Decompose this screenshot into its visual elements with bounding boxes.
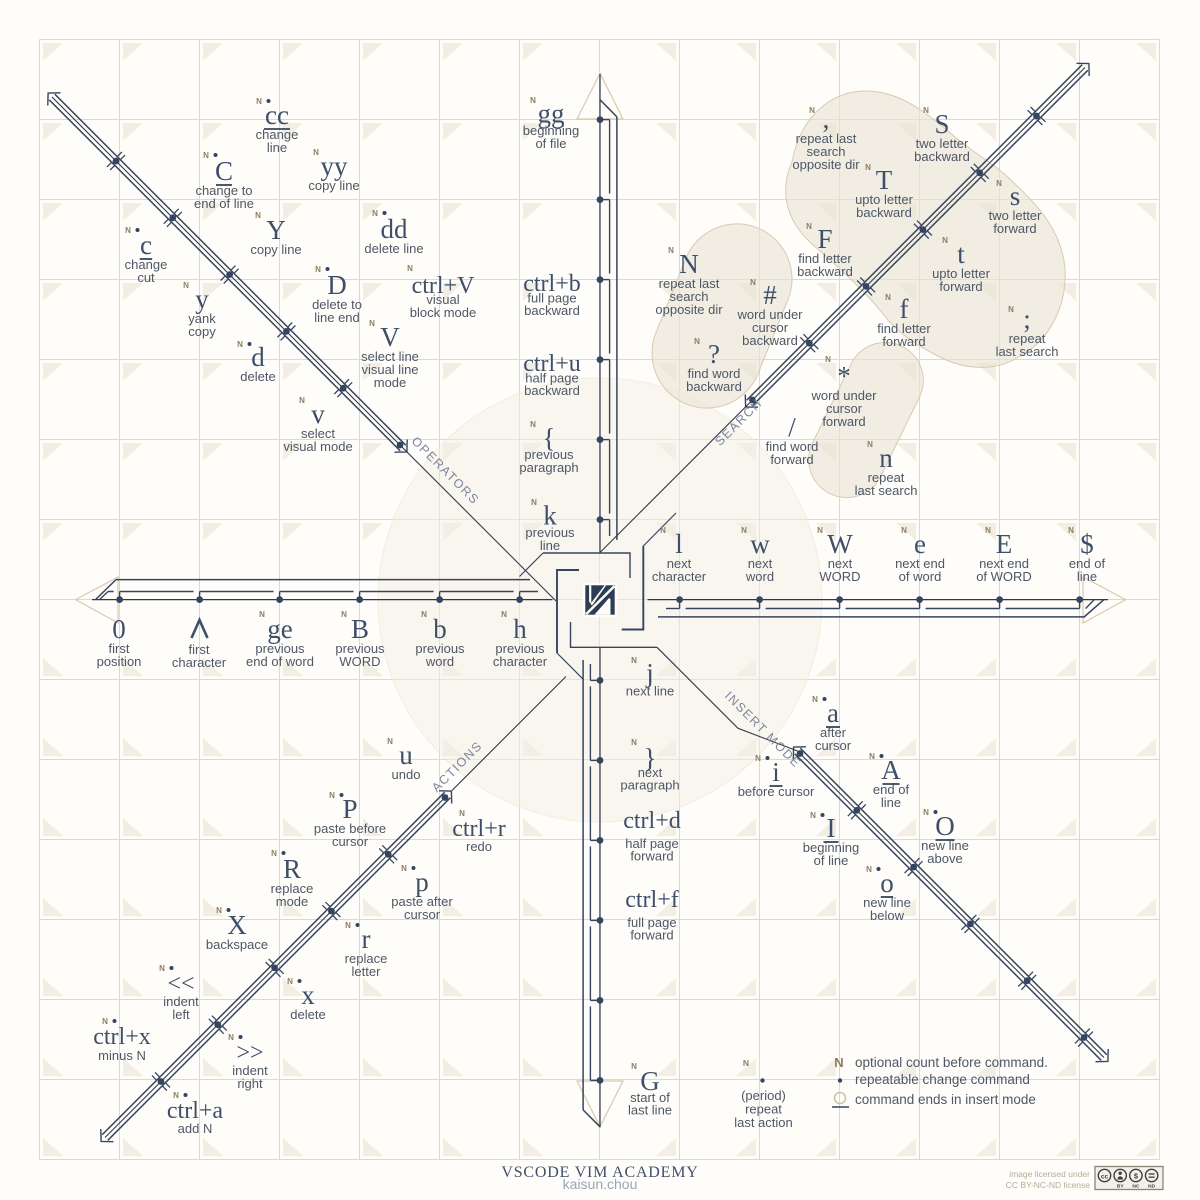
svg-text:n: n: [879, 443, 893, 473]
svg-text:N: N: [530, 420, 536, 429]
svg-text:NC: NC: [1132, 1183, 1139, 1189]
svg-text:N: N: [741, 526, 747, 535]
svg-text:i: i: [772, 757, 780, 787]
svg-text:cursor: cursor: [404, 907, 441, 922]
svg-text:N: N: [501, 610, 507, 619]
svg-text:delete: delete: [290, 1007, 325, 1022]
svg-text:F: F: [817, 224, 832, 254]
svg-text:R: R: [283, 854, 301, 884]
svg-text:N: N: [834, 1055, 843, 1070]
svg-text:delete line: delete line: [364, 241, 423, 256]
svg-text:*: *: [837, 361, 851, 391]
svg-text:N: N: [923, 808, 929, 817]
svg-text:N: N: [255, 211, 261, 220]
svg-text:N: N: [102, 1017, 108, 1026]
svg-text:h: h: [513, 614, 527, 644]
svg-text:N: N: [631, 1062, 637, 1071]
svg-text:right: right: [237, 1076, 263, 1091]
svg-text:repeatable change command: repeatable change command: [855, 1072, 1030, 1087]
svg-text:N: N: [1008, 305, 1014, 314]
svg-text:N: N: [866, 865, 872, 874]
svg-text:cursor: cursor: [815, 738, 852, 753]
svg-text:ctrl+f: ctrl+f: [625, 887, 679, 913]
svg-text:N: N: [216, 906, 222, 915]
svg-text:BY: BY: [1117, 1183, 1124, 1189]
svg-text:forward: forward: [939, 279, 982, 294]
svg-text:N: N: [1068, 526, 1074, 535]
svg-text:D: D: [327, 270, 347, 300]
svg-text:N: N: [694, 337, 700, 346]
svg-text:A: A: [881, 755, 901, 785]
svg-text:N: N: [228, 1033, 234, 1042]
svg-text:forward: forward: [822, 414, 865, 429]
svg-text:W: W: [827, 529, 853, 559]
svg-text:last search: last search: [855, 483, 918, 498]
svg-text:add N: add N: [178, 1121, 213, 1136]
svg-text:,: ,: [823, 104, 830, 134]
svg-text:backspace: backspace: [206, 937, 268, 952]
svg-text:N: N: [287, 977, 293, 986]
svg-text:d: d: [251, 342, 265, 372]
svg-text:N: N: [885, 293, 891, 302]
svg-text:backward: backward: [914, 149, 970, 164]
svg-text:N: N: [817, 526, 823, 535]
svg-text:position: position: [97, 654, 142, 669]
svg-text:N: N: [743, 1058, 749, 1068]
svg-text:line: line: [1077, 569, 1097, 584]
svg-text:N: N: [203, 151, 209, 160]
svg-text:l: l: [675, 529, 683, 559]
svg-text:a: a: [827, 698, 839, 728]
svg-text:y: y: [195, 284, 209, 314]
svg-text:copy line: copy line: [308, 178, 359, 193]
svg-text:N: N: [755, 754, 761, 763]
svg-text:paragraph: paragraph: [620, 778, 679, 793]
svg-text:#: #: [763, 280, 777, 310]
svg-text:c: c: [140, 230, 152, 260]
svg-text:opposite dir: opposite dir: [792, 157, 860, 172]
svg-text:WORD: WORD: [339, 654, 380, 669]
svg-text:N: N: [299, 396, 305, 405]
svg-text:backward: backward: [686, 379, 742, 394]
svg-text:next line: next line: [626, 684, 674, 699]
svg-text:before cursor: before cursor: [738, 784, 815, 799]
svg-text:image licensed under: image licensed under: [1009, 1169, 1090, 1179]
svg-text:x: x: [301, 980, 315, 1010]
svg-text:ge: ge: [267, 614, 293, 644]
svg-text:N: N: [668, 246, 674, 255]
svg-text:e: e: [914, 529, 926, 559]
svg-text:backward: backward: [856, 205, 912, 220]
svg-text:cut: cut: [137, 270, 155, 285]
svg-text:N: N: [173, 1091, 179, 1100]
svg-text:N: N: [631, 656, 637, 665]
svg-text:B: B: [351, 614, 369, 644]
svg-text:end of line: end of line: [194, 196, 254, 211]
svg-text:X: X: [227, 910, 247, 940]
svg-text:T: T: [876, 165, 893, 195]
svg-text:N: N: [631, 738, 637, 747]
svg-text:above: above: [927, 851, 962, 866]
svg-text:yy: yy: [321, 151, 349, 181]
svg-text:N: N: [407, 264, 413, 273]
svg-text:optional count before command.: optional count before command.: [855, 1055, 1048, 1070]
svg-text:ctrl+x: ctrl+x: [93, 1024, 151, 1050]
svg-text:character: character: [652, 569, 707, 584]
svg-text:N: N: [341, 610, 347, 619]
svg-text:w: w: [750, 529, 770, 559]
svg-text:N: N: [256, 97, 262, 106]
svg-text:N: N: [421, 610, 427, 619]
svg-text:I: I: [827, 813, 836, 843]
svg-text:below: below: [870, 908, 905, 923]
svg-text:N: N: [183, 281, 189, 290]
svg-text:/: /: [788, 412, 796, 442]
svg-text:delete: delete: [240, 369, 275, 384]
svg-text:ctrl+d: ctrl+d: [623, 808, 681, 834]
svg-text:forward: forward: [770, 452, 813, 467]
svg-text:N: N: [531, 498, 537, 507]
svg-text:line: line: [881, 795, 901, 810]
svg-text:r: r: [362, 924, 371, 954]
svg-text:of line: of line: [814, 853, 849, 868]
svg-text:?: ?: [708, 339, 720, 369]
svg-text:mode: mode: [276, 894, 309, 909]
svg-text:cc: cc: [265, 100, 289, 130]
svg-text:undo: undo: [392, 767, 421, 782]
svg-text:N: N: [530, 96, 536, 105]
svg-text:line: line: [267, 140, 287, 155]
svg-text:0: 0: [112, 614, 126, 644]
svg-text:cursor: cursor: [332, 834, 369, 849]
svg-text:f: f: [900, 294, 909, 324]
svg-text:N: N: [271, 849, 277, 858]
svg-text:;: ;: [1023, 304, 1031, 334]
svg-text:P: P: [342, 794, 357, 824]
svg-text:redo: redo: [466, 839, 492, 854]
svg-text:N: N: [996, 179, 1002, 188]
svg-text:S: S: [934, 109, 949, 139]
svg-text:$: $: [1080, 529, 1094, 559]
svg-text:N: N: [345, 921, 351, 930]
svg-text:dd: dd: [381, 214, 409, 244]
svg-text:o: o: [880, 868, 894, 898]
svg-text:N: N: [387, 737, 393, 746]
svg-text:backward: backward: [742, 333, 798, 348]
svg-text:CC BY-NC-ND license: CC BY-NC-ND license: [1006, 1180, 1091, 1190]
svg-text:word: word: [425, 654, 454, 669]
svg-text:word: word: [745, 569, 774, 584]
svg-text:forward: forward: [993, 221, 1036, 236]
svg-text:Y: Y: [266, 215, 286, 245]
svg-text:minus N: minus N: [98, 1048, 146, 1063]
svg-text:of WORD: of WORD: [976, 569, 1032, 584]
svg-text:forward: forward: [630, 928, 673, 943]
svg-text:E: E: [996, 529, 1013, 559]
svg-text:N: N: [942, 236, 948, 245]
svg-text:u: u: [399, 740, 413, 770]
svg-text:opposite dir: opposite dir: [655, 302, 723, 317]
svg-text:N: N: [985, 526, 991, 535]
svg-text:backward: backward: [797, 264, 853, 279]
svg-text:N: N: [923, 106, 929, 115]
svg-text:C: C: [215, 156, 233, 186]
svg-text:N: N: [159, 964, 165, 973]
svg-text:t: t: [957, 239, 965, 269]
svg-text:forward: forward: [882, 334, 925, 349]
svg-text:N: N: [901, 526, 907, 535]
svg-text:p: p: [415, 867, 429, 897]
svg-text:N: N: [660, 526, 666, 535]
svg-text:last action: last action: [734, 1115, 793, 1130]
svg-text:command ends in insert mode: command ends in insert mode: [855, 1092, 1036, 1107]
svg-text:N: N: [313, 148, 319, 157]
svg-text:O: O: [935, 811, 955, 841]
svg-text:mode: mode: [374, 375, 407, 390]
svg-text:N: N: [329, 791, 335, 800]
svg-text:end of word: end of word: [246, 654, 314, 669]
svg-text:N: N: [812, 695, 818, 704]
svg-text:b: b: [433, 614, 447, 644]
svg-text:N: N: [806, 222, 812, 231]
svg-text:of file: of file: [535, 136, 566, 151]
svg-text:ND: ND: [1148, 1183, 1155, 1189]
svg-text:N: N: [315, 265, 321, 274]
svg-text:forward: forward: [630, 849, 673, 864]
svg-text:N: N: [125, 226, 131, 235]
svg-text:of word: of word: [899, 569, 942, 584]
svg-text:copy: copy: [188, 324, 216, 339]
svg-text:character: character: [172, 655, 227, 670]
svg-text:paragraph: paragraph: [519, 460, 578, 475]
svg-text:block mode: block mode: [410, 305, 476, 320]
svg-text:N: N: [865, 163, 871, 172]
svg-text:backward: backward: [524, 303, 580, 318]
svg-text:N: N: [825, 355, 831, 364]
svg-text:cc: cc: [1101, 1174, 1109, 1181]
svg-text:N: N: [237, 340, 243, 349]
svg-text:visual mode: visual mode: [283, 439, 352, 454]
svg-text:N: N: [867, 440, 873, 449]
svg-text:N: N: [679, 249, 699, 279]
svg-text:N: N: [809, 106, 815, 115]
svg-text:letter: letter: [352, 964, 382, 979]
svg-text:s: s: [1010, 181, 1021, 211]
svg-text:N: N: [369, 319, 375, 328]
svg-text:copy line: copy line: [250, 242, 301, 257]
svg-text:character: character: [493, 654, 548, 669]
svg-text:line end: line end: [314, 310, 360, 325]
svg-text:N: N: [810, 811, 816, 820]
svg-text:kaisun.chou: kaisun.chou: [563, 1176, 638, 1192]
svg-text:v: v: [311, 399, 325, 429]
svg-text:N: N: [259, 610, 265, 619]
svg-text:V: V: [380, 322, 400, 352]
svg-text:N: N: [372, 209, 378, 218]
svg-text:left: left: [172, 1007, 190, 1022]
svg-text:N: N: [750, 278, 756, 287]
svg-text:N: N: [869, 752, 875, 761]
svg-text:last search: last search: [996, 344, 1059, 359]
svg-text:backward: backward: [524, 383, 580, 398]
svg-text:N: N: [459, 809, 465, 818]
svg-text:last line: last line: [628, 1103, 672, 1118]
svg-text:WORD: WORD: [819, 569, 860, 584]
svg-text:line: line: [540, 538, 560, 553]
svg-text:N: N: [401, 864, 407, 873]
